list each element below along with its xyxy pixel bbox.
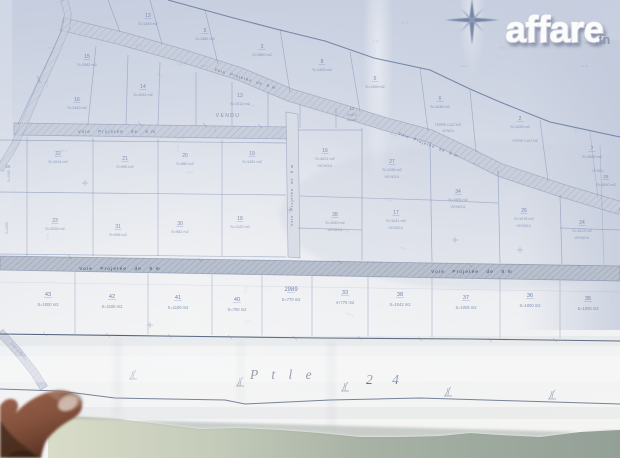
svg-text:S=872: S=872 bbox=[347, 113, 357, 117]
svg-text:37: 37 bbox=[463, 295, 469, 301]
svg-text:S=1014 m2: S=1014 m2 bbox=[48, 160, 68, 164]
svg-text:82.25: 82.25 bbox=[61, 149, 68, 153]
svg-text:73.84: 73.84 bbox=[213, 125, 217, 132]
svg-text:93.16: 93.16 bbox=[201, 64, 208, 68]
svg-text:S=1500: S=1500 bbox=[7, 170, 11, 182]
svg-text:24: 24 bbox=[579, 220, 585, 226]
svg-text:20.31: 20.31 bbox=[244, 287, 248, 294]
svg-text:13: 13 bbox=[237, 93, 243, 99]
svg-text:S=1506 m2: S=1506 m2 bbox=[448, 198, 468, 202]
svg-text:S=1000 m2: S=1000 m2 bbox=[37, 302, 59, 307]
svg-text:25: 25 bbox=[604, 174, 609, 179]
svg-text:S=1500 m2: S=1500 m2 bbox=[582, 155, 602, 159]
svg-text:S=1281 m2: S=1281 m2 bbox=[242, 160, 262, 164]
svg-text:S=1091 m2: S=1091 m2 bbox=[133, 93, 153, 97]
svg-text:2: 2 bbox=[519, 116, 522, 122]
svg-text:28: 28 bbox=[332, 212, 338, 218]
svg-text:33: 33 bbox=[342, 290, 348, 296]
svg-text:VENDU: VENDU bbox=[516, 224, 531, 228]
svg-text:S=1436 m2: S=1436 m2 bbox=[430, 105, 450, 109]
svg-text:S=982 m2: S=982 m2 bbox=[171, 230, 188, 234]
svg-text:42: 42 bbox=[109, 294, 115, 300]
svg-text:S=1000 m2: S=1000 m2 bbox=[577, 306, 599, 311]
svg-text:8: 8 bbox=[321, 59, 324, 65]
svg-text:S=1500 m2: S=1500 m2 bbox=[252, 53, 272, 57]
svg-text:Voie Projetée de 8 m: Voie Projetée de 8 m bbox=[431, 269, 513, 274]
svg-text:TERRE CULTIVE: TERRE CULTIVE bbox=[435, 123, 462, 127]
svg-text:Voie Projetée de 8 m: Voie Projetée de 8 m bbox=[78, 129, 156, 134]
svg-text:S=1000 m2: S=1000 m2 bbox=[596, 183, 616, 187]
svg-text:VENDU: VENDU bbox=[592, 169, 604, 173]
svg-text:S=1382 m2: S=1382 m2 bbox=[195, 37, 215, 41]
svg-text:S=1026 m2: S=1026 m2 bbox=[45, 227, 65, 231]
svg-text:36: 36 bbox=[527, 293, 533, 299]
svg-text:23: 23 bbox=[52, 218, 58, 224]
svg-text:.tn: .tn bbox=[595, 33, 610, 47]
svg-text:53.67: 53.67 bbox=[187, 170, 194, 174]
svg-text:S=1042 m2: S=1042 m2 bbox=[389, 302, 411, 307]
svg-text:VENDU: VENDU bbox=[327, 228, 342, 232]
svg-text:95.54: 95.54 bbox=[177, 137, 184, 141]
svg-text:19: 19 bbox=[249, 151, 255, 157]
svg-text:S=1382 m2: S=1382 m2 bbox=[77, 63, 97, 67]
svg-text:S=1093 m2: S=1093 m2 bbox=[325, 221, 345, 225]
svg-text:43: 43 bbox=[45, 292, 51, 298]
svg-text:TERRE CULTIVE: TERRE CULTIVE bbox=[512, 139, 539, 143]
svg-text:S=770 m2: S=770 m2 bbox=[282, 297, 301, 302]
svg-text:2989: 2989 bbox=[284, 287, 298, 293]
svg-text:VENDU: VENDU bbox=[216, 113, 241, 119]
svg-text:72.63: 72.63 bbox=[461, 64, 468, 68]
svg-text:97.78: 97.78 bbox=[45, 80, 49, 87]
svg-text:32.29: 32.29 bbox=[581, 64, 588, 68]
svg-text:14: 14 bbox=[140, 84, 146, 90]
svg-text:29: 29 bbox=[6, 164, 11, 169]
svg-text:31: 31 bbox=[115, 224, 121, 230]
svg-text:S=1345 m2: S=1345 m2 bbox=[138, 22, 158, 26]
svg-text:VENDU: VENDU bbox=[384, 175, 399, 179]
svg-text:17: 17 bbox=[393, 210, 399, 216]
svg-text:26.41: 26.41 bbox=[44, 255, 48, 262]
svg-text:S=1106 m2: S=1106 m2 bbox=[102, 304, 123, 309]
svg-text:S=1106 m2: S=1106 m2 bbox=[382, 168, 401, 172]
svg-text:41: 41 bbox=[175, 295, 181, 301]
svg-text:S=1100 m2: S=1100 m2 bbox=[168, 305, 189, 310]
svg-text:68.56: 68.56 bbox=[473, 161, 480, 165]
svg-text:VENDU: VENDU bbox=[388, 226, 403, 230]
svg-text:30: 30 bbox=[177, 221, 183, 227]
svg-text:5: 5 bbox=[374, 76, 377, 82]
svg-text:S=1440 m2: S=1440 m2 bbox=[67, 106, 87, 110]
svg-text:S=1429 m2: S=1429 m2 bbox=[312, 68, 332, 72]
svg-text:20: 20 bbox=[182, 153, 188, 159]
svg-text:5: 5 bbox=[204, 28, 207, 34]
svg-text:S=1396 m2: S=1396 m2 bbox=[365, 85, 385, 89]
svg-text:40: 40 bbox=[234, 297, 240, 303]
svg-text:26: 26 bbox=[521, 208, 527, 214]
svg-text:VENDU: VENDU bbox=[442, 129, 454, 133]
svg-text:S=1076 m2: S=1076 m2 bbox=[514, 217, 534, 221]
svg-text:16: 16 bbox=[74, 97, 80, 103]
svg-text:S=1013 m2: S=1013 m2 bbox=[572, 229, 592, 233]
svg-text:4+770 m2: 4+770 m2 bbox=[336, 300, 355, 305]
svg-text:VENDU: VENDU bbox=[450, 205, 465, 209]
svg-text:38: 38 bbox=[397, 292, 403, 298]
svg-text:27: 27 bbox=[389, 159, 395, 165]
svg-text:16: 16 bbox=[322, 148, 328, 154]
svg-text:13: 13 bbox=[145, 13, 151, 19]
svg-text:S=4021 m2: S=4021 m2 bbox=[315, 157, 335, 161]
svg-text:S=1000 m2: S=1000 m2 bbox=[519, 303, 541, 308]
svg-text:15: 15 bbox=[84, 54, 90, 60]
svg-text:3: 3 bbox=[261, 44, 264, 50]
svg-text:44.70: 44.70 bbox=[48, 46, 55, 50]
svg-text:S=1041 m2: S=1041 m2 bbox=[386, 219, 406, 223]
svg-text:12: 12 bbox=[350, 106, 355, 111]
svg-text:Voie Projetée de 8 m: Voie Projetée de 8 m bbox=[289, 164, 294, 226]
svg-text:34: 34 bbox=[455, 189, 461, 195]
svg-text:S=1122 m2: S=1122 m2 bbox=[230, 225, 249, 229]
svg-text:VENDU: VENDU bbox=[317, 164, 332, 168]
svg-text:15.81: 15.81 bbox=[245, 320, 252, 324]
svg-text:S=700 m2: S=700 m2 bbox=[228, 307, 247, 312]
svg-text:63.18: 63.18 bbox=[135, 44, 142, 48]
svg-text:85.33: 85.33 bbox=[402, 21, 409, 25]
svg-text:S=990 m2: S=990 m2 bbox=[116, 165, 133, 169]
svg-text:92.83: 92.83 bbox=[45, 234, 49, 241]
svg-text:35: 35 bbox=[585, 296, 591, 302]
svg-text:21: 21 bbox=[122, 156, 128, 162]
svg-text:75.63: 75.63 bbox=[372, 40, 379, 44]
svg-text:88.24: 88.24 bbox=[573, 127, 577, 134]
svg-text:S=1005 m2: S=1005 m2 bbox=[455, 305, 477, 310]
svg-text:S=1426 m2: S=1426 m2 bbox=[510, 125, 530, 129]
svg-text:VENDU: VENDU bbox=[347, 118, 358, 122]
svg-text:18: 18 bbox=[237, 216, 243, 222]
svg-text:Voie Projetée de 8 m: Voie Projetée de 8 m bbox=[79, 266, 161, 271]
svg-text:S=996 m2: S=996 m2 bbox=[109, 233, 126, 237]
svg-text:7: 7 bbox=[591, 146, 594, 152]
svg-text:S=1500: S=1500 bbox=[5, 222, 9, 234]
svg-text:55.97: 55.97 bbox=[176, 145, 180, 152]
svg-text:VENDU: VENDU bbox=[574, 236, 589, 240]
svg-text:affare: affare bbox=[506, 9, 604, 50]
svg-text:S=980 m2: S=980 m2 bbox=[176, 162, 193, 166]
svg-text:6: 6 bbox=[439, 96, 442, 102]
